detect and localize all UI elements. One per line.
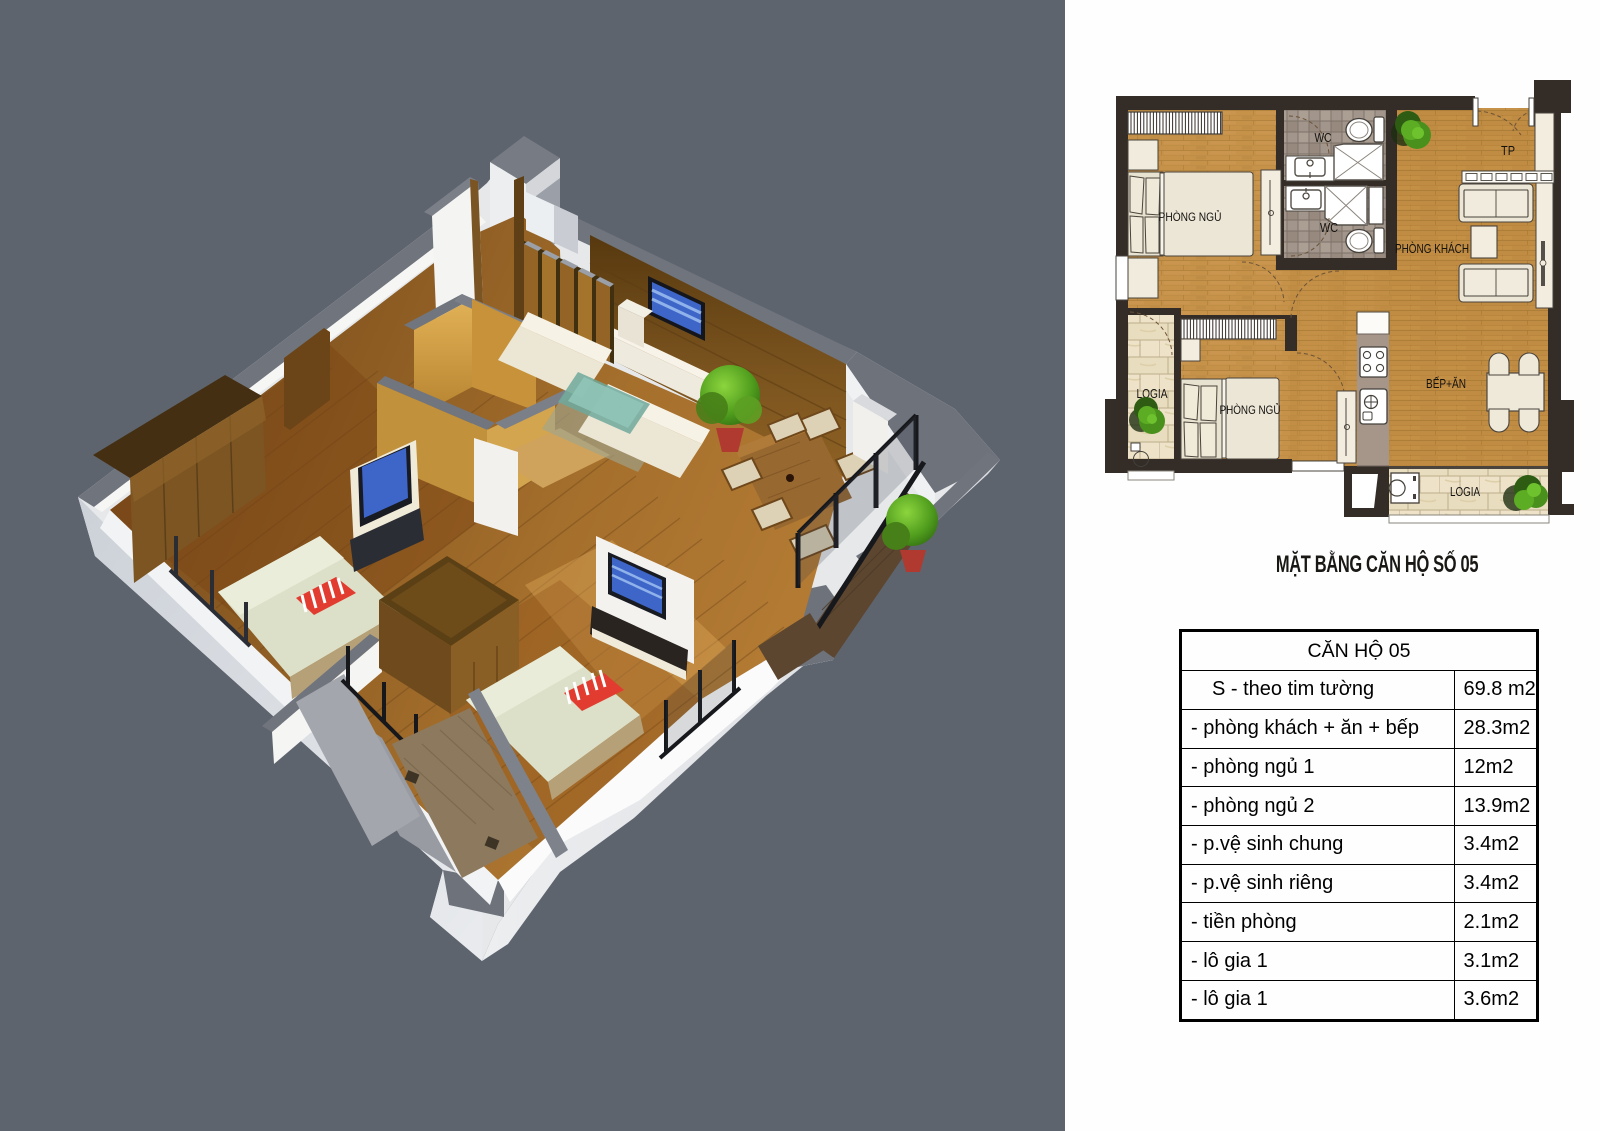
svg-text:PHÒNG NGỦ: PHÒNG NGỦ: [1220, 402, 1281, 417]
svg-text:PHÒNG NGỦ: PHÒNG NGỦ: [1159, 209, 1222, 224]
svg-text:TP: TP: [1501, 144, 1515, 158]
svg-text:WC: WC: [1320, 221, 1338, 235]
svg-text:PHÒNG KHÁCH: PHÒNG KHÁCH: [1395, 241, 1469, 256]
svg-text:LOGIA: LOGIA: [1450, 485, 1481, 499]
svg-text:BẾP+ĂN: BẾP+ĂN: [1426, 376, 1466, 391]
svg-text:WC: WC: [1315, 131, 1332, 145]
